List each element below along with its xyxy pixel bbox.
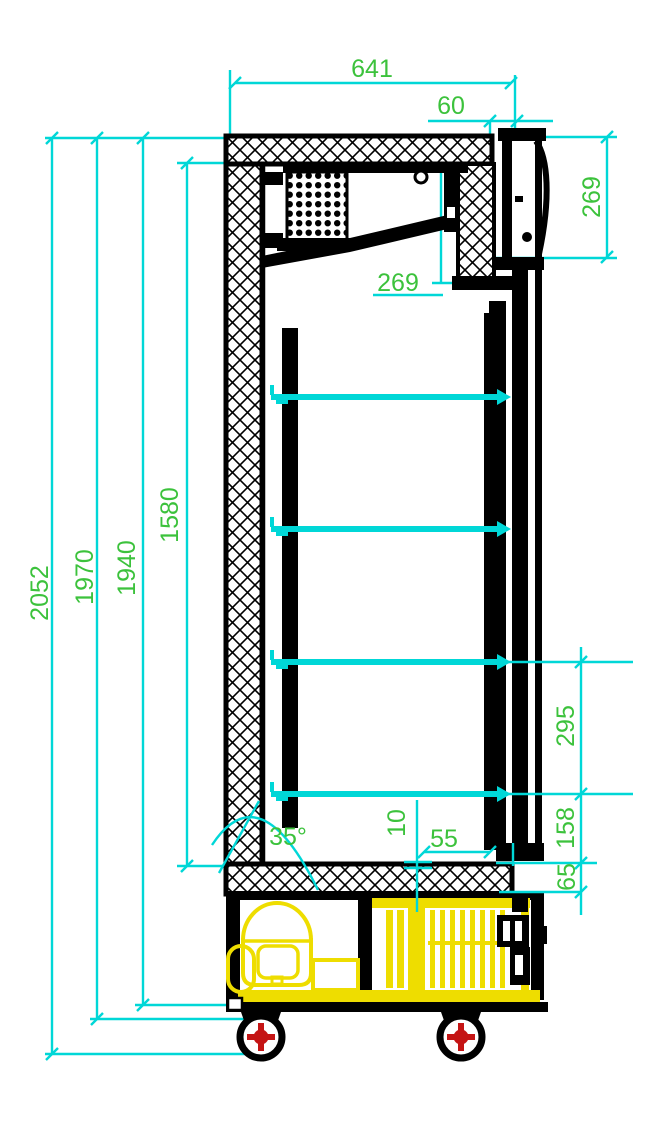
dim-label-lower-section: 158 — [552, 807, 580, 849]
shelf — [270, 782, 511, 802]
dim-label-interior-height: 1580 — [156, 487, 184, 543]
condenser-unit — [372, 898, 530, 998]
front-top-frame — [458, 164, 494, 280]
evaporator-coil — [287, 172, 347, 242]
shelves — [270, 385, 511, 802]
dim-label-overall-depth: 641 — [351, 55, 393, 83]
dim-label-top-section: 269 — [578, 176, 606, 218]
dim-label-evaporator-depth: 269 — [377, 269, 419, 297]
drawing-canvas: 641 60 269 55 35° 269 2052 1970 1940 158… — [0, 0, 650, 1134]
shelf — [270, 650, 511, 670]
dim-label-body-height: 1940 — [113, 540, 141, 596]
top-wall — [226, 136, 492, 164]
dim-label-floor-thickness: 65 — [553, 863, 581, 891]
dim-label-shelf-pitch: 295 — [552, 705, 580, 747]
hinge-pin — [522, 232, 532, 242]
dim-label-door-frame: 60 — [437, 92, 465, 120]
bottom-wall — [226, 864, 512, 894]
door-outer-face — [535, 141, 542, 858]
shelf — [270, 517, 511, 537]
door-glass-pane — [512, 270, 528, 852]
dim-label-overall-height: 2052 — [26, 565, 54, 621]
screw-head — [415, 171, 427, 183]
shelf — [270, 385, 511, 405]
dim-label-base-angle: 35° — [269, 823, 307, 851]
back-wall — [226, 136, 262, 874]
dim-label-shelf-clearance: 55 — [430, 825, 458, 853]
caster-left — [240, 1012, 282, 1058]
cabinet-body — [226, 128, 548, 1012]
refrigerator-section-drawing: 641 60 269 55 35° 269 2052 1970 1940 158… — [0, 0, 650, 1134]
dim-label-height-to-base: 1970 — [71, 549, 99, 605]
dim-label-gap: 10 — [383, 809, 411, 837]
caster-right — [440, 1012, 482, 1058]
evaporator-unit — [262, 164, 468, 268]
compartment-divider — [358, 898, 372, 998]
compressor — [228, 903, 358, 992]
